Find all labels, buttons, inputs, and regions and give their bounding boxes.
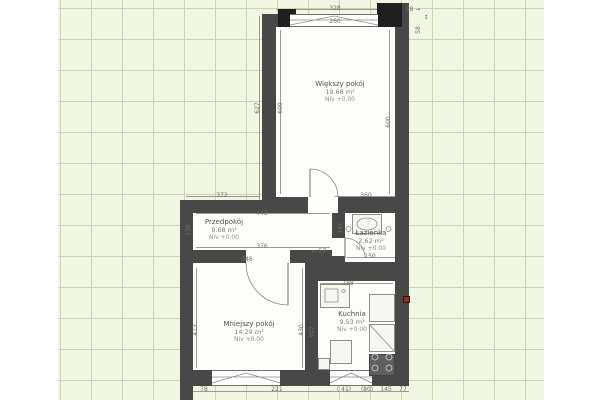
room-name: Kuchnia bbox=[337, 310, 367, 318]
window[interactable] bbox=[330, 370, 372, 386]
dimension-label: 78 bbox=[200, 387, 208, 393]
fixture-kitchen-cabinet[interactable] bbox=[330, 340, 352, 364]
dimension-label: 188 bbox=[342, 281, 353, 287]
room-name: Przedpokój bbox=[205, 218, 243, 226]
room-level: Niv +0.00 bbox=[315, 96, 365, 104]
wall-corner-block[interactable] bbox=[377, 3, 402, 27]
point-marker[interactable] bbox=[403, 296, 410, 303]
wall[interactable] bbox=[305, 263, 318, 386]
fixture-kitchen-counter[interactable] bbox=[369, 324, 395, 352]
room-area: 2.62 m² bbox=[356, 237, 387, 245]
dimension-label: 413 bbox=[193, 324, 199, 335]
room-name: Mniejszy pokój bbox=[223, 320, 274, 328]
dimension-label: 141 bbox=[338, 222, 344, 233]
dimension-label: 77 bbox=[399, 387, 407, 393]
fixture-kitchen-cabinet[interactable] bbox=[318, 358, 330, 370]
room-level: Niv +0.00 bbox=[205, 234, 243, 242]
room-level: Niv +0.00 bbox=[337, 326, 367, 334]
room-level: Niv +0.00 bbox=[356, 245, 387, 253]
dimension-label: 430 bbox=[299, 324, 305, 335]
dimension-label: 600 bbox=[278, 102, 284, 113]
door-opening bbox=[332, 238, 345, 256]
room-label-kuchnia: Kuchnia9.53 m²Niv +0.00 bbox=[337, 310, 367, 334]
room-label-mniejszy-pokoj: Mniejszy pokój14.29 m²Niv +0.00 bbox=[223, 320, 274, 344]
room-area: 9.68 m² bbox=[205, 226, 243, 234]
dimension-label: 221 bbox=[271, 387, 282, 393]
dimension-label: (80) bbox=[361, 387, 373, 393]
room-area: 9.53 m² bbox=[337, 318, 367, 326]
dimension-label: ( 41) bbox=[337, 387, 351, 393]
dimension-label: 260 bbox=[329, 19, 340, 25]
room-floor-mniejszy-pokoj[interactable] bbox=[193, 263, 305, 370]
door-opening bbox=[308, 197, 338, 213]
dimension-label: 360 bbox=[360, 193, 371, 199]
dimension-label: 627 bbox=[255, 102, 261, 113]
dimension-label: ↕ bbox=[423, 15, 428, 21]
room-area: 19.68 m² bbox=[315, 88, 365, 96]
wall[interactable] bbox=[395, 3, 409, 386]
room-label-przedpokoj: Przedpokój9.68 m²Niv +0.00 bbox=[205, 218, 243, 242]
dimension-label: 58 bbox=[416, 26, 422, 34]
dimension-line bbox=[186, 391, 409, 392]
room-floor-wiekszy-pokoj[interactable] bbox=[276, 27, 395, 197]
room-label-lazienka: Łazienka2.62 m²Niv +0.00 bbox=[356, 229, 387, 253]
dimension-label: 372 bbox=[216, 193, 227, 199]
wall[interactable] bbox=[262, 14, 276, 210]
dimension-label: 150 bbox=[364, 254, 375, 260]
dimension-label: 58 → bbox=[406, 7, 421, 13]
dimension-line bbox=[196, 268, 197, 368]
dimension-label: 507 bbox=[310, 326, 316, 337]
room-name: Łazienka bbox=[356, 229, 387, 237]
fixture-kitchen-counter[interactable] bbox=[369, 294, 395, 322]
dimension-label: 600 bbox=[386, 116, 392, 127]
fixture-kitchen-sink[interactable] bbox=[320, 284, 350, 308]
floor-plan-app-viewport: Większy pokój19.68 m²Niv +0.00Przedpokój… bbox=[0, 0, 600, 400]
dimension-label: 138 bbox=[186, 224, 192, 235]
dimension-label: 145 bbox=[380, 387, 391, 393]
fixture-kitchen-stove[interactable] bbox=[369, 354, 395, 376]
dimension-label: 346 bbox=[241, 257, 252, 263]
room-label-wiekszy-pokoj: Większy pokój19.68 m²Niv +0.00 bbox=[315, 80, 365, 104]
room-level: Niv +0.00 bbox=[223, 336, 274, 344]
window[interactable] bbox=[212, 370, 280, 386]
dimension-label: ← 57 bbox=[312, 249, 327, 255]
dimension-label: 376 bbox=[256, 244, 267, 250]
room-name: Większy pokój bbox=[315, 80, 365, 88]
dimension-line bbox=[389, 30, 390, 194]
floor-plan: Większy pokój19.68 m²Niv +0.00Przedpokój… bbox=[0, 0, 600, 400]
dimension-label: 443 bbox=[256, 211, 267, 217]
dimension-line bbox=[302, 268, 303, 368]
wall[interactable] bbox=[318, 262, 409, 281]
dimension-label: 328 bbox=[329, 6, 340, 12]
room-area: 14.29 m² bbox=[223, 328, 274, 336]
